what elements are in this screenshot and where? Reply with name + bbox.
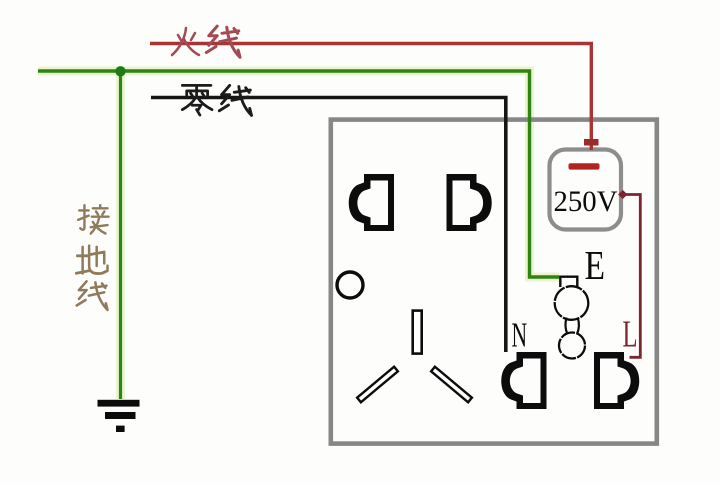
svg-text:250V: 250V (554, 185, 618, 218)
svg-text:N: N (512, 316, 528, 354)
svg-text:L: L (623, 312, 638, 355)
svg-text:E: E (585, 244, 606, 289)
